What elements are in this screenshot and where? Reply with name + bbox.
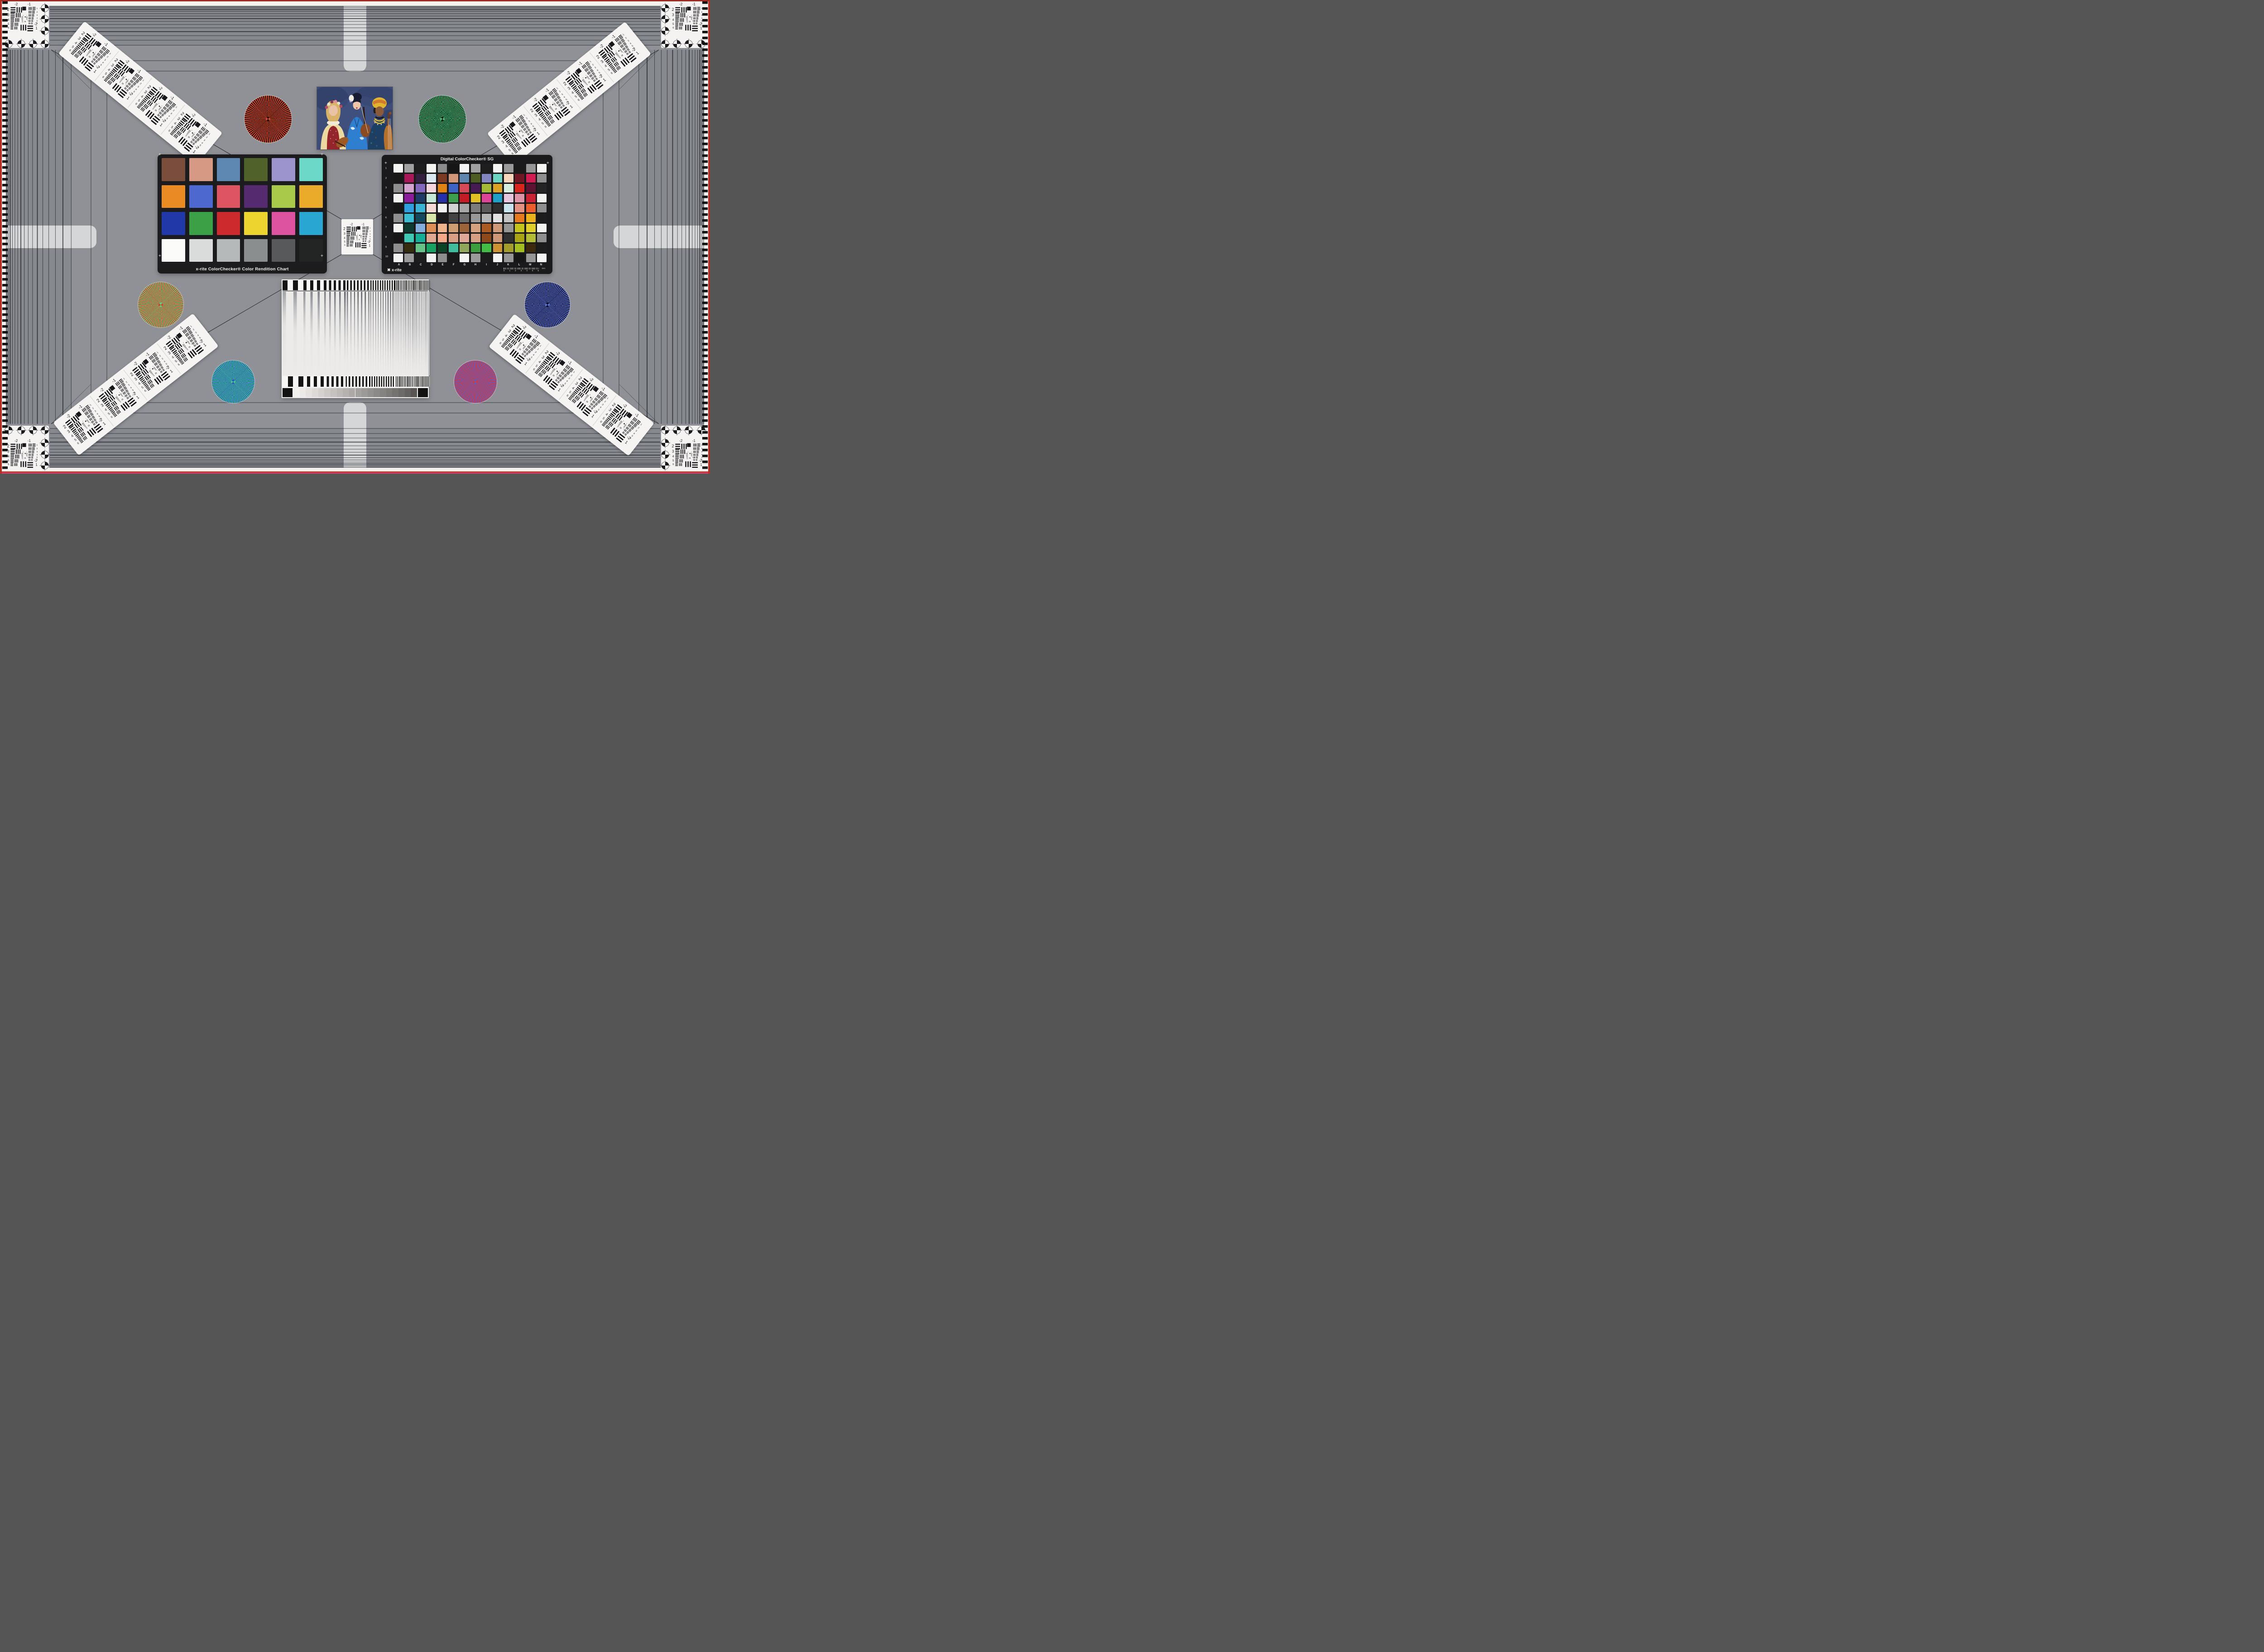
svg-text:4: 4 [672, 455, 674, 458]
svg-text:6: 6 [610, 72, 614, 75]
sg-color-patch [393, 224, 403, 232]
classic-color-patch [272, 158, 295, 181]
svg-text:4: 4 [571, 91, 575, 95]
svg-text:1: 1 [109, 53, 111, 56]
sg-color-patch [493, 174, 503, 182]
svg-text:2: 2 [163, 346, 168, 351]
svg-text:0: 0 [125, 76, 127, 77]
ruler-numbers: 0123456 [504, 269, 539, 272]
sg-row-number: 1 [385, 167, 387, 170]
registration-circle [39, 425, 50, 436]
sg-color-patch [427, 214, 436, 222]
registration-circle [672, 425, 682, 436]
grayscale-wedge-step [318, 388, 325, 397]
sg-color-patch [504, 214, 513, 222]
sg-color-patch [471, 184, 480, 192]
sg-column-letter: F [448, 264, 459, 267]
registration-circle [660, 449, 671, 460]
svg-text:1: 1 [691, 451, 692, 453]
grayscale-wedge-step [324, 388, 331, 397]
sg-color-patch [482, 184, 491, 192]
svg-text:1: 1 [152, 365, 154, 367]
corner-registration-cluster: -2-123456123456-210101 [661, 1, 705, 48]
svg-text:-2: -2 [158, 85, 163, 91]
svg-text:-1: -1 [169, 95, 175, 101]
registration-circle-mark [16, 425, 27, 436]
sweep-bar-segment-bottom [413, 376, 424, 387]
sg-color-patch [449, 174, 458, 182]
svg-text:1: 1 [89, 403, 92, 407]
grayscale-wedge-step [306, 388, 312, 397]
svg-text:2: 2 [343, 227, 345, 231]
svg-text:-2: -2 [191, 112, 197, 118]
registration-circle-mark [39, 14, 50, 24]
ruler-number: 3 [521, 269, 522, 272]
grayscale-wedge-step [355, 388, 362, 397]
corner-cross-mark: + [321, 154, 323, 156]
svg-text:5: 5 [369, 238, 371, 240]
colorchecker-classic-title: x-rite ColorChecker® Color Rendition Cha… [158, 267, 327, 272]
corner-registration-cluster: -2-123456123456-210101 [5, 1, 49, 48]
svg-text:4: 4 [344, 236, 345, 240]
svg-text:-2: -2 [166, 335, 172, 341]
svg-text:2: 2 [672, 7, 674, 12]
svg-text:2: 2 [577, 376, 583, 382]
svg-text:5: 5 [672, 23, 674, 26]
classic-color-patch [217, 239, 240, 262]
svg-text:0: 0 [362, 239, 363, 240]
svg-text:3: 3 [104, 58, 106, 62]
registration-circle-mark [672, 425, 682, 436]
svg-text:3: 3 [600, 59, 604, 64]
svg-text:4: 4 [369, 235, 371, 238]
svg-text:6: 6 [577, 98, 581, 102]
sg-color-patch [393, 234, 403, 242]
siemens-star-center-dot [439, 116, 446, 122]
registration-circle [672, 38, 682, 49]
classic-color-patch [189, 158, 213, 181]
sg-column-letter: H [470, 264, 481, 267]
sg-color-patch [482, 204, 491, 212]
svg-text:6: 6 [68, 49, 72, 53]
svg-text:3: 3 [36, 14, 38, 16]
sg-color-patch [537, 224, 547, 232]
sg-color-patch [493, 214, 503, 222]
svg-text:2: 2 [92, 407, 95, 410]
sg-color-patch [438, 164, 447, 173]
sg-color-patch [471, 164, 480, 173]
svg-text:1: 1 [35, 26, 38, 30]
classic-color-patch [217, 212, 240, 235]
siemens-star-center-dot [544, 302, 551, 308]
ruler-number: 2 [515, 269, 516, 272]
wedge-end-block-right [418, 388, 428, 397]
diagonal-resolution-strip: -2-123456123456-210101-2-123456123456-21… [489, 314, 654, 456]
svg-text:6: 6 [344, 244, 345, 247]
sg-color-patch [504, 244, 513, 252]
svg-text:5: 5 [501, 338, 505, 342]
svg-text:-2: -2 [699, 458, 702, 462]
sg-color-patch [393, 164, 403, 173]
grayscale-wedge-step [392, 388, 398, 397]
svg-text:1: 1 [640, 423, 643, 427]
sg-color-patch [416, 224, 425, 232]
sg-color-patch [438, 184, 447, 192]
sg-color-patch [471, 214, 480, 222]
classic-color-patch [272, 239, 295, 262]
svg-text:-2: -2 [499, 124, 505, 130]
sg-column-letter: E [437, 264, 448, 267]
corner-registration-cluster: -2-123456123456-210101 [5, 426, 49, 473]
svg-text:1: 1 [369, 244, 370, 247]
svg-text:3: 3 [344, 232, 345, 235]
svg-text:1: 1 [126, 96, 130, 101]
sg-color-patch [449, 184, 458, 192]
sg-row-number: 4 [385, 197, 387, 199]
classic-color-patch [299, 239, 323, 262]
corner-cross-mark: + [158, 255, 161, 258]
grayscale-wedge-step [398, 388, 405, 397]
registration-circle [16, 38, 27, 49]
svg-text:1: 1 [536, 131, 541, 136]
svg-text:1: 1 [360, 234, 361, 235]
grayscale-wedge-step [361, 388, 368, 397]
sg-color-patch [482, 224, 491, 232]
svg-text:1: 1 [618, 48, 620, 49]
usaf-resolution-target: -2-123456123456-210101 [671, 439, 704, 471]
svg-text:5: 5 [8, 23, 10, 26]
svg-text:-1: -1 [362, 223, 365, 226]
colorchecker-classic-chart: x-rite ColorChecker® Color Rendition Cha… [158, 154, 327, 274]
svg-text:4: 4 [173, 121, 177, 125]
sg-column-letter: G [459, 264, 470, 267]
svg-text:5: 5 [344, 241, 345, 244]
registration-circle-mark [660, 14, 671, 24]
svg-text:5: 5 [568, 390, 572, 394]
svg-text:3: 3 [672, 450, 674, 454]
sg-color-patch [537, 204, 547, 212]
svg-text:5: 5 [8, 459, 10, 462]
sg-color-patch [438, 194, 447, 202]
svg-text:1: 1 [622, 34, 625, 37]
svg-text:5: 5 [541, 121, 545, 125]
sg-color-patch [416, 194, 425, 202]
svg-text:1: 1 [161, 105, 163, 107]
svg-text:-1: -1 [544, 87, 550, 93]
svg-text:1: 1 [626, 423, 628, 424]
registration-circle-mark [28, 425, 38, 436]
sg-color-patch [449, 164, 458, 173]
sg-color-patch [438, 234, 447, 242]
svg-text:1: 1 [592, 396, 594, 398]
svg-text:-1: -1 [567, 360, 573, 365]
svg-text:5: 5 [174, 360, 178, 364]
sweep-divider-line [283, 291, 428, 292]
svg-text:2: 2 [125, 381, 128, 384]
sg-color-patch [515, 184, 524, 192]
sg-color-patch [393, 194, 403, 202]
registration-circle-mark [660, 449, 671, 460]
sg-column-letter: D [426, 264, 437, 267]
registration-circle-mark [39, 25, 50, 36]
svg-text:0: 0 [158, 102, 160, 104]
sweep-bar-segment-top [303, 280, 324, 290]
sg-color-patch [471, 194, 480, 202]
registration-circle-mark [28, 38, 38, 49]
svg-text:3: 3 [167, 351, 172, 355]
svg-text:6: 6 [566, 394, 569, 398]
svg-text:-2: -2 [350, 223, 353, 226]
sg-color-patch [427, 234, 436, 242]
sg-color-patch [526, 204, 536, 212]
sg-color-patch [404, 224, 414, 232]
sg-color-patch [537, 184, 547, 192]
sg-row-number: 9 [385, 246, 387, 249]
svg-text:1: 1 [95, 52, 96, 53]
registration-circle [39, 38, 50, 49]
svg-text:-1: -1 [111, 378, 117, 384]
svg-text:-2: -2 [99, 387, 105, 393]
svg-text:0: 0 [28, 20, 29, 22]
svg-text:0: 0 [688, 451, 689, 453]
svg-text:0: 0 [522, 341, 524, 343]
registration-circle [660, 460, 671, 471]
svg-text:1: 1 [202, 342, 207, 347]
svg-text:2: 2 [592, 63, 595, 67]
svg-text:2: 2 [139, 82, 142, 86]
svg-text:0: 0 [589, 394, 591, 396]
registration-circle [683, 38, 694, 49]
sg-color-patch [482, 254, 491, 262]
siemens-star [525, 282, 570, 327]
svg-text:3: 3 [110, 62, 115, 67]
svg-text:3: 3 [672, 13, 674, 17]
svg-text:-1: -1 [28, 2, 31, 6]
corner-cross-mark: + [158, 154, 161, 156]
svg-text:-1: -1 [178, 325, 184, 331]
svg-text:2: 2 [159, 355, 162, 358]
sg-color-patch [537, 244, 547, 252]
sg-color-patch [482, 174, 491, 182]
sg-column-letter: A [393, 264, 404, 267]
corner-usaf-holder: -2-123456123456-210101 [671, 2, 704, 35]
sweep-bar-segment-bottom [283, 376, 303, 387]
registration-circle [39, 3, 50, 14]
svg-text:-2: -2 [589, 376, 595, 382]
ruler-unit: mm [542, 267, 546, 269]
diagonal-resolution-strip: -2-123456123456-210101-2-123456123456-21… [53, 313, 219, 456]
svg-text:3: 3 [635, 429, 638, 432]
svg-text:4: 4 [504, 144, 509, 149]
sg-color-patch [537, 254, 547, 262]
sg-color-patch [460, 234, 469, 242]
sg-color-patch [493, 204, 503, 212]
svg-text:5: 5 [508, 148, 512, 152]
sg-color-patch [460, 184, 469, 192]
svg-text:6: 6 [177, 363, 181, 366]
sg-color-patch [460, 254, 469, 262]
sg-color-patch [515, 164, 524, 173]
svg-text:-2: -2 [125, 58, 130, 64]
sg-column-letter: N [536, 264, 547, 267]
edge-tick-strip-left [2, 1, 8, 471]
svg-text:1: 1 [159, 122, 163, 127]
svg-text:5: 5 [74, 438, 77, 442]
sg-color-patch [537, 194, 547, 202]
svg-text:6: 6 [600, 420, 603, 424]
svg-text:3: 3 [203, 139, 206, 142]
sg-row-numbers: 12345678910 [385, 164, 392, 262]
ruler-number: 6 [537, 269, 539, 272]
registration-circle-mark [660, 38, 671, 49]
sg-mm-ruler: 0123456 mm [504, 268, 545, 273]
svg-text:-2: -2 [367, 240, 370, 244]
svg-text:5: 5 [535, 364, 538, 368]
sg-color-patch [482, 194, 491, 202]
classic-color-patch [162, 185, 185, 208]
svg-text:4: 4 [672, 19, 674, 22]
sg-color-patch [449, 204, 458, 212]
sg-color-patch [416, 164, 425, 173]
svg-text:3: 3 [500, 139, 505, 144]
sg-color-patch [482, 164, 491, 173]
colorchecker-sg-title: Digital ColorChecker® SG [382, 157, 552, 162]
sg-color-patch [515, 194, 524, 202]
svg-text:0: 0 [182, 341, 184, 343]
svg-text:1: 1 [523, 361, 528, 366]
svg-text:2: 2 [570, 374, 573, 377]
sg-color-patch [537, 234, 547, 242]
sweep-bar-segment-bottom [370, 376, 395, 387]
sg-color-patch [482, 244, 491, 252]
svg-text:2: 2 [96, 398, 101, 403]
svg-text:-2: -2 [34, 22, 37, 26]
svg-text:-1: -1 [692, 439, 696, 443]
registration-circle [39, 449, 50, 460]
sg-color-patch [449, 194, 458, 202]
svg-text:2: 2 [205, 136, 208, 139]
svg-text:1: 1 [539, 345, 542, 348]
registration-circle [683, 425, 694, 436]
sweep-bar-segment-top [424, 280, 430, 290]
siemens-star [454, 360, 497, 403]
sg-color-patch [427, 224, 436, 232]
svg-text:2: 2 [604, 400, 606, 403]
svg-text:-1: -1 [28, 439, 31, 443]
svg-text:3: 3 [566, 86, 571, 91]
corner-cross-mark: + [321, 255, 323, 258]
svg-text:-2: -2 [14, 439, 18, 443]
corner-usaf-holder: -2-123456123456-210101 [6, 439, 39, 471]
svg-text:4: 4 [171, 355, 175, 360]
svg-text:1: 1 [192, 149, 197, 154]
sg-color-patch [471, 244, 480, 252]
ruler-number: 0 [504, 269, 505, 272]
targets-layer: -2-123456123456-210101 -2-123456123456-2… [0, 0, 710, 474]
svg-text:3: 3 [528, 120, 531, 123]
ruler-number: 1 [509, 269, 511, 272]
svg-text:0: 0 [191, 130, 193, 131]
svg-text:1: 1 [175, 106, 177, 109]
registration-circle-mark [683, 38, 694, 49]
classic-color-patch [244, 212, 268, 235]
svg-text:1: 1 [85, 418, 87, 419]
sg-color-patch [438, 254, 447, 262]
svg-text:-2: -2 [91, 32, 97, 38]
svg-text:2: 2 [637, 427, 640, 430]
svg-text:2: 2 [672, 444, 674, 448]
sg-color-patch [515, 234, 524, 242]
sg-color-patch [416, 254, 425, 262]
svg-text:2: 2 [36, 11, 38, 13]
svg-text:6: 6 [8, 27, 9, 29]
svg-text:4: 4 [504, 333, 508, 338]
svg-text:0: 0 [23, 451, 24, 453]
sg-color-patch [416, 214, 425, 222]
svg-text:0: 0 [688, 15, 689, 16]
svg-text:0: 0 [556, 368, 557, 370]
sg-color-patch [493, 234, 503, 242]
sg-color-patch [404, 234, 414, 242]
sg-color-patch [515, 204, 524, 212]
svg-text:1: 1 [590, 413, 595, 418]
svg-text:3: 3 [594, 67, 597, 70]
svg-text:6: 6 [499, 341, 502, 345]
grayscale-wedge-step [349, 388, 355, 397]
svg-text:5: 5 [107, 412, 111, 416]
siemens-star-center-dot [265, 116, 271, 122]
sg-color-patch [416, 204, 425, 212]
usaf-resolution-target: -2-123456123456-210101 [671, 2, 704, 35]
svg-text:5: 5 [672, 459, 674, 462]
musicians-photo-illustration [317, 87, 393, 149]
svg-text:5: 5 [602, 417, 605, 421]
grayscale-wedge-step [405, 388, 411, 397]
sg-color-patch [537, 164, 547, 173]
sg-color-patch [427, 204, 436, 212]
classic-color-patch [244, 239, 268, 262]
svg-text:4: 4 [604, 412, 609, 417]
sg-color-patch [449, 234, 458, 242]
svg-text:4: 4 [140, 94, 144, 99]
svg-text:2: 2 [544, 350, 549, 355]
sweep-bar-segment-top [347, 280, 370, 290]
svg-text:3: 3 [507, 329, 512, 334]
sg-column-letter: J [492, 264, 503, 267]
sg-color-patch [438, 214, 447, 222]
svg-text:6: 6 [673, 463, 674, 466]
sg-column-letters: ABCDEFGHIJKLMN [393, 264, 547, 267]
svg-text:0: 0 [516, 130, 518, 132]
svg-text:6: 6 [8, 463, 9, 466]
sg-color-patch [393, 214, 403, 222]
svg-text:1: 1 [691, 15, 692, 16]
siemens-star-center-dot [158, 302, 164, 308]
sweep-bar-segment-bottom [347, 376, 370, 387]
classic-color-patch [299, 185, 323, 208]
sg-column-letter: C [415, 264, 426, 267]
siemens-star [212, 360, 254, 403]
registration-circle-mark [39, 460, 50, 471]
classic-color-patch [189, 239, 213, 262]
svg-text:1: 1 [26, 451, 27, 453]
sg-color-patch [393, 184, 403, 192]
svg-text:5: 5 [170, 125, 174, 130]
svg-text:2: 2 [625, 37, 628, 40]
sg-color-patch [427, 174, 436, 182]
sweep-fade-overlay [283, 292, 428, 375]
svg-text:-2: -2 [522, 324, 528, 330]
